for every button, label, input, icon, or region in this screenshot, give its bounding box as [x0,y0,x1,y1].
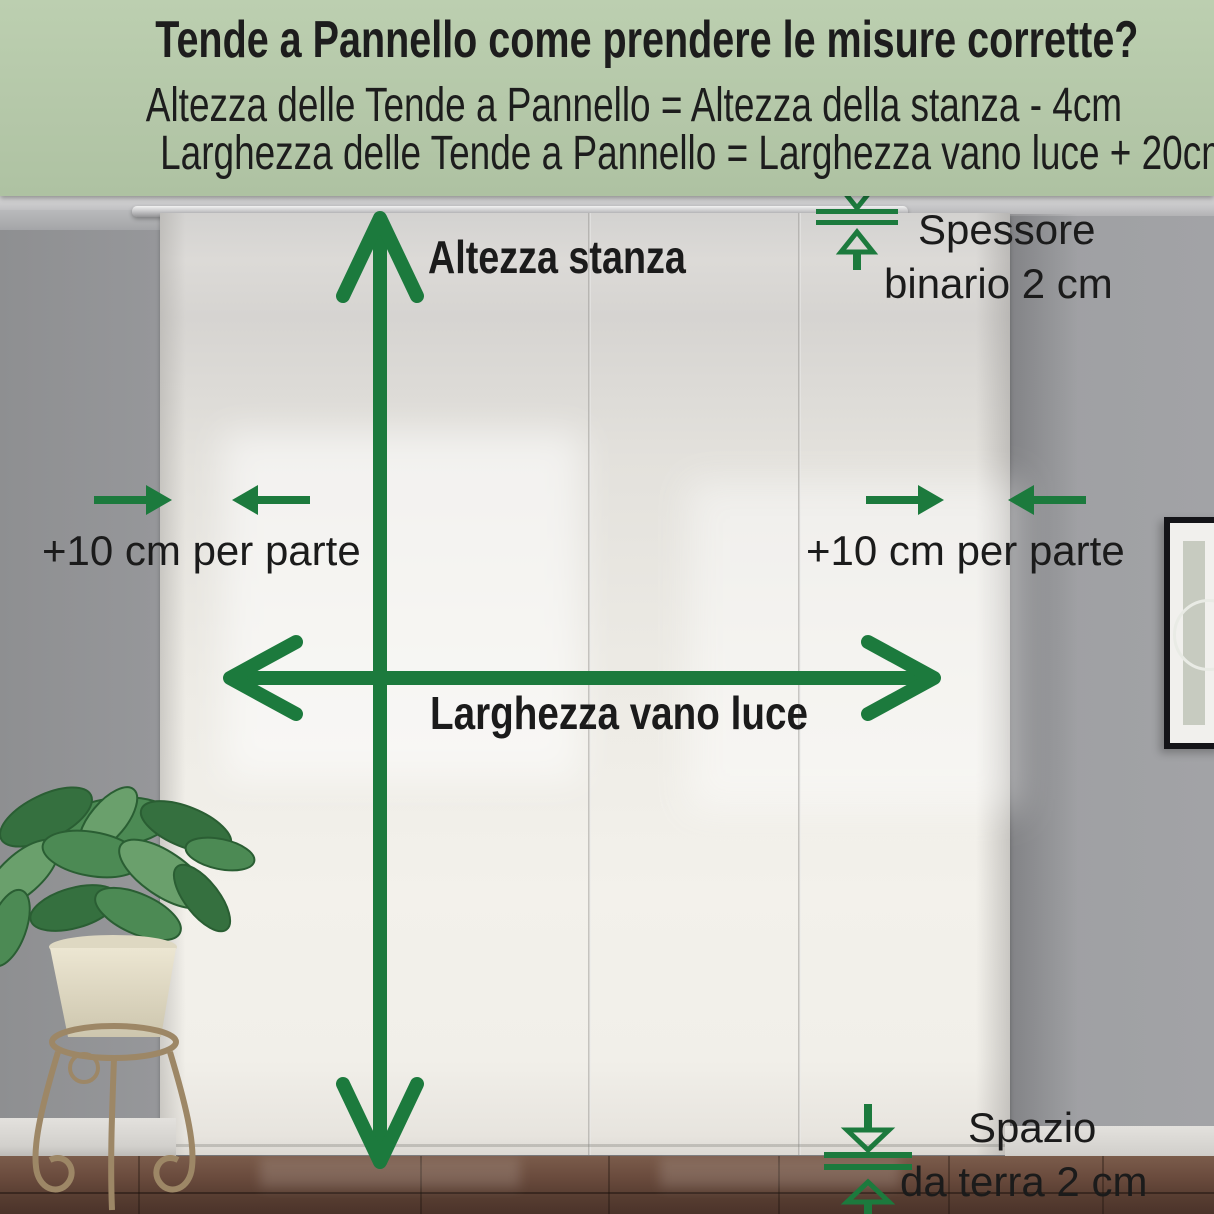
track-thickness-label-line1: Spessore [918,206,1095,254]
header-band: Tende a Pannello come prendere le misure… [0,0,1214,196]
opening-width-label: Larghezza vano luce [430,686,880,740]
frame-mat [1170,523,1214,743]
panel-seam [798,213,801,1155]
floor-gap-label-line2: da terra 2 cm [900,1158,1147,1206]
width-formula: Larghezza delle Tende a Pannello = Largh… [0,126,1214,181]
floor-gap-label-line1: Spazio [968,1104,1096,1152]
picture-frame-icon [1164,517,1214,749]
page-title: Tende a Pannello come prendere le misure… [0,10,1214,70]
panel-seam [588,213,591,1155]
panel-curtains [160,213,1010,1155]
wall-corner-shadow [1008,214,1078,1144]
right-margin-label: +10 cm per parte [806,527,1125,575]
frame-art [1183,541,1205,725]
plant-icon [0,742,258,1214]
track-thickness-label-line2: binario 2 cm [884,260,1113,308]
height-formula: Altezza delle Tende a Pannello = Altezza… [0,78,1214,133]
tile-joint [608,1156,610,1214]
floor-reflection [660,1158,900,1188]
curtain-hem [160,1144,1010,1147]
infographic-panel-curtain-measures: Altezza stanza Larghezza vano luce +10 c… [0,0,1214,1214]
floor-reflection [260,1158,520,1188]
frame-art-circle [1173,599,1214,671]
left-margin-label: +10 cm per parte [42,527,361,575]
room-height-label: Altezza stanza [428,230,742,284]
